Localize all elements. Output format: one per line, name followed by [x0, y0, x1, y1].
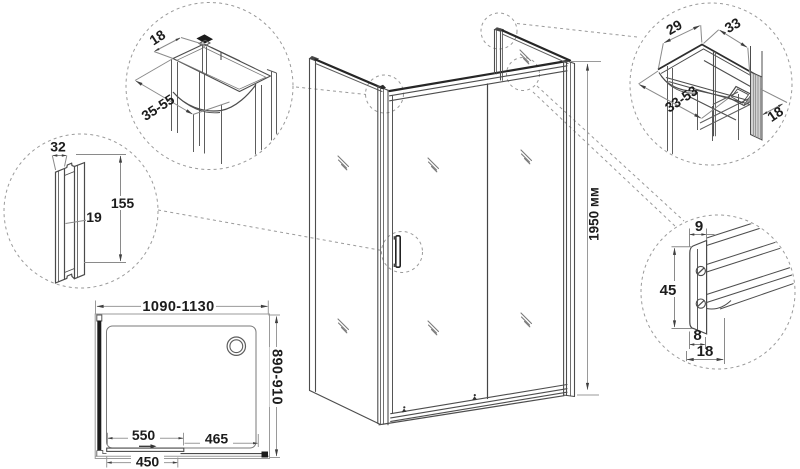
svg-text:1090-1130: 1090-1130 [142, 299, 214, 315]
svg-text:45: 45 [660, 282, 677, 299]
svg-text:32: 32 [50, 139, 66, 155]
svg-text:19: 19 [86, 209, 102, 225]
svg-text:9: 9 [695, 218, 703, 235]
svg-text:450: 450 [136, 454, 160, 469]
svg-text:890-910: 890-910 [268, 349, 284, 405]
svg-text:550: 550 [132, 427, 156, 443]
svg-text:18: 18 [697, 343, 714, 360]
svg-text:1950 мм: 1950 мм [586, 187, 601, 241]
svg-text:465: 465 [205, 431, 229, 447]
svg-text:155: 155 [111, 195, 135, 211]
svg-text:8: 8 [693, 327, 701, 344]
